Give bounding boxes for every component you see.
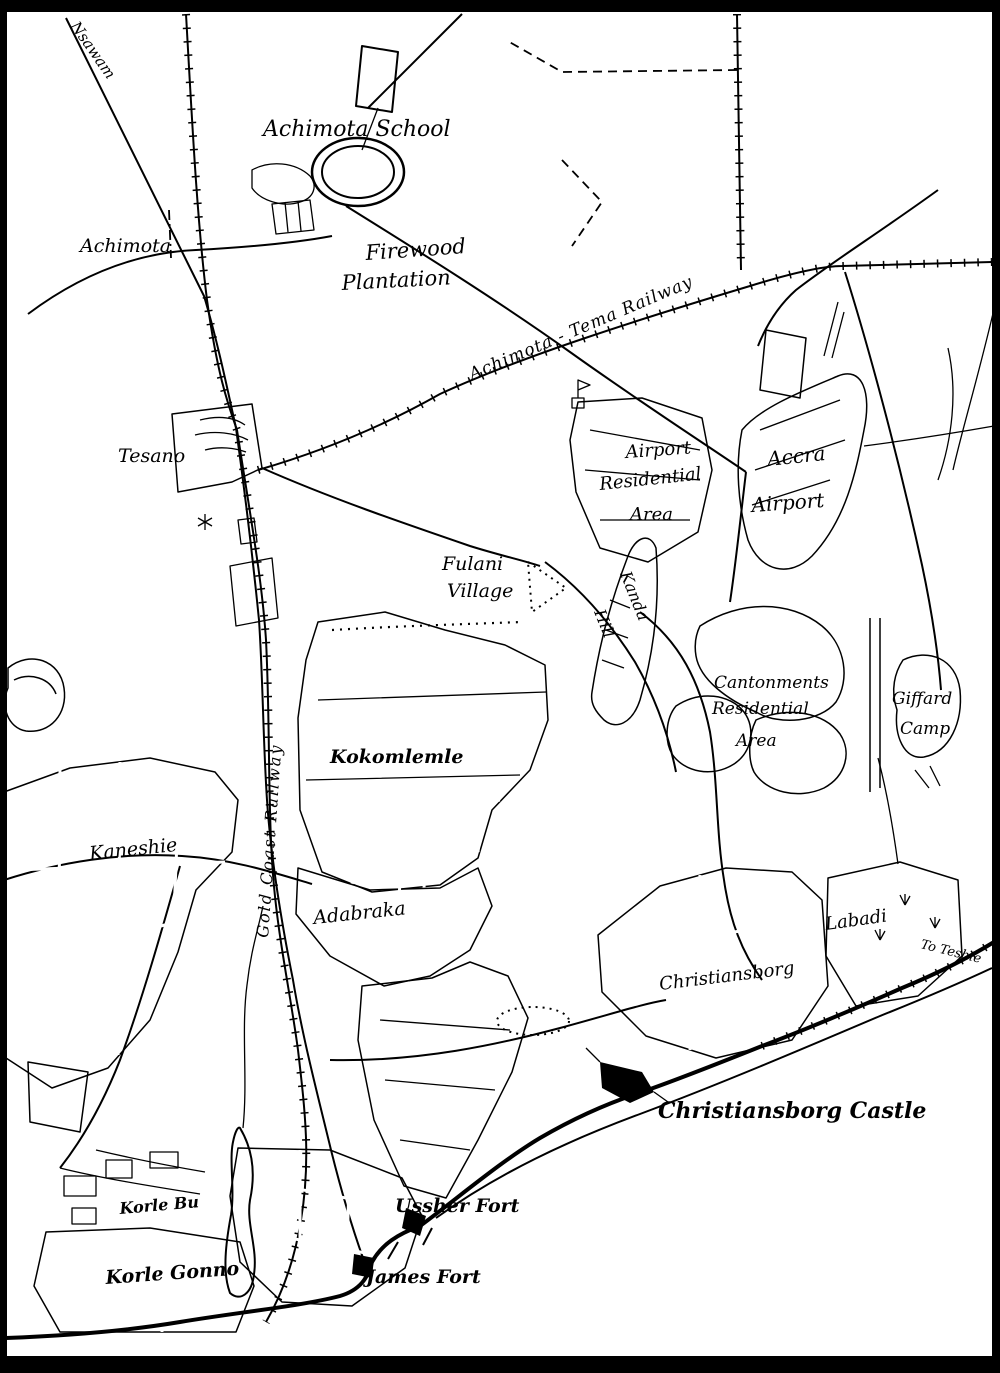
- accra-airport-field: [738, 374, 867, 569]
- map-labels: Nsawam Achimota School Achimota Firewood…: [66, 17, 983, 1289]
- cantonments-outline-3: [750, 712, 846, 793]
- label-cantonments-1: Cantonments: [714, 673, 829, 693]
- airport-mast-lines: [824, 302, 844, 358]
- giffard-marks: [915, 766, 940, 788]
- boundary-lines: [169, 40, 737, 258]
- border-bottom: [0, 1356, 1000, 1373]
- label-ussher-fort: Ussher Fort: [395, 1195, 520, 1217]
- label-to-teshie: To Teshie: [919, 937, 983, 967]
- map-canvas: Nsawam Achimota School Achimota Firewood…: [0, 0, 1000, 1373]
- label-kaneshie: Kaneshie: [87, 834, 178, 865]
- label-christiansborg: Christiansborg: [658, 958, 796, 995]
- road-east-of-airport: [864, 426, 994, 446]
- survey-marker-flag: [572, 380, 590, 408]
- road-cantonments-south: [640, 612, 762, 980]
- railways: [186, 14, 992, 1322]
- stream-right-2: [953, 305, 995, 470]
- airport-buildings-block: [760, 330, 806, 398]
- road-to-christiansborg: [330, 1000, 666, 1060]
- label-kanda-1: Kanda: [616, 567, 653, 623]
- label-giffard-1: Giffard: [892, 689, 952, 709]
- stream-right-1: [938, 348, 953, 480]
- label-tesano: Tesano: [118, 445, 185, 467]
- railway-gold-coast: [186, 14, 306, 1322]
- border-top: [0, 0, 1000, 12]
- school-oval-inner: [322, 146, 394, 198]
- school-oval-outer: [312, 138, 404, 206]
- giffard-boundary-lines: [870, 618, 880, 792]
- road-tesano-east: [262, 468, 540, 566]
- label-accra-airport-1: Accra: [764, 441, 827, 471]
- school-farm-block: [356, 46, 398, 112]
- boundary-dashed-mid: [562, 160, 602, 246]
- road-labadi-north: [878, 758, 898, 864]
- airport-district: [570, 302, 867, 569]
- label-kanda-2: Hill: [590, 605, 619, 640]
- korle-stream: [243, 906, 263, 1128]
- label-james-fort: James Fort: [363, 1266, 481, 1288]
- label-airport-residential-1: Airport: [623, 437, 693, 463]
- label-airport-residential-2: Residential: [597, 463, 702, 495]
- label-cantonments-2: Residential: [711, 699, 809, 719]
- school-west-block: [272, 200, 314, 234]
- boundary-dashed-top: [506, 40, 737, 72]
- korle-features: [64, 1007, 569, 1297]
- railway-top-right: [737, 14, 741, 270]
- school-west-pod: [252, 164, 314, 204]
- label-firewood-1: Firewood: [364, 234, 467, 265]
- label-christiansborg-castle: Christiansborg Castle: [658, 1098, 926, 1124]
- road-coastal: [436, 968, 992, 1218]
- label-fulani-village-2: Village: [447, 580, 513, 602]
- label-fulani-village-1: Fulani: [441, 553, 503, 575]
- label-achimota-tema-railway: Achimota - Tema Railway: [464, 272, 696, 385]
- road-to-giffard: [845, 272, 941, 690]
- urban-areas: [4, 612, 962, 1332]
- urban-area-labadi: [826, 862, 962, 1006]
- label-airport-residential-3: Area: [628, 504, 673, 525]
- fulani-village-boundary: [528, 562, 566, 612]
- streets-kaneshie: [15, 762, 230, 1080]
- label-accra-airport-2: Airport: [749, 488, 826, 517]
- label-labadi: Labadi: [823, 905, 889, 935]
- west-village-outline: [5, 659, 65, 731]
- label-achimota: Achimota: [78, 235, 171, 257]
- road-korle-bu-1: [60, 1168, 200, 1194]
- label-korle-gonno: Korle Gonno: [104, 1258, 240, 1289]
- road-airport-south: [730, 472, 746, 602]
- label-kokomlemle: Kokomlemle: [329, 746, 463, 768]
- label-cantonments-3: Area: [734, 731, 777, 751]
- roads: [4, 14, 995, 1258]
- road-school-north: [368, 14, 462, 108]
- label-firewood-2: Plantation: [340, 265, 451, 295]
- roads-victoriaborg: [380, 1020, 510, 1150]
- christiansborg-castle-symbol: [600, 1062, 654, 1103]
- streets-adabraka: [310, 880, 480, 982]
- tree-symbol: [198, 514, 212, 530]
- accra-map: Nsawam Achimota School Achimota Firewood…: [0, 0, 1000, 1373]
- road-main-north-south: [236, 428, 363, 1258]
- railway-gold-coast-ticks: [186, 14, 306, 1322]
- border-right: [992, 0, 1000, 1373]
- label-adabraka: Adabraka: [310, 897, 406, 929]
- label-giffard-2: Camp: [900, 719, 950, 739]
- label-achimota-school: Achimota School: [261, 117, 451, 142]
- racecourse-oval: [497, 1007, 569, 1035]
- border-left: [0, 0, 7, 1373]
- road-to-nsawam: [66, 18, 236, 428]
- label-korle-bu: Korle Bu: [118, 1192, 200, 1218]
